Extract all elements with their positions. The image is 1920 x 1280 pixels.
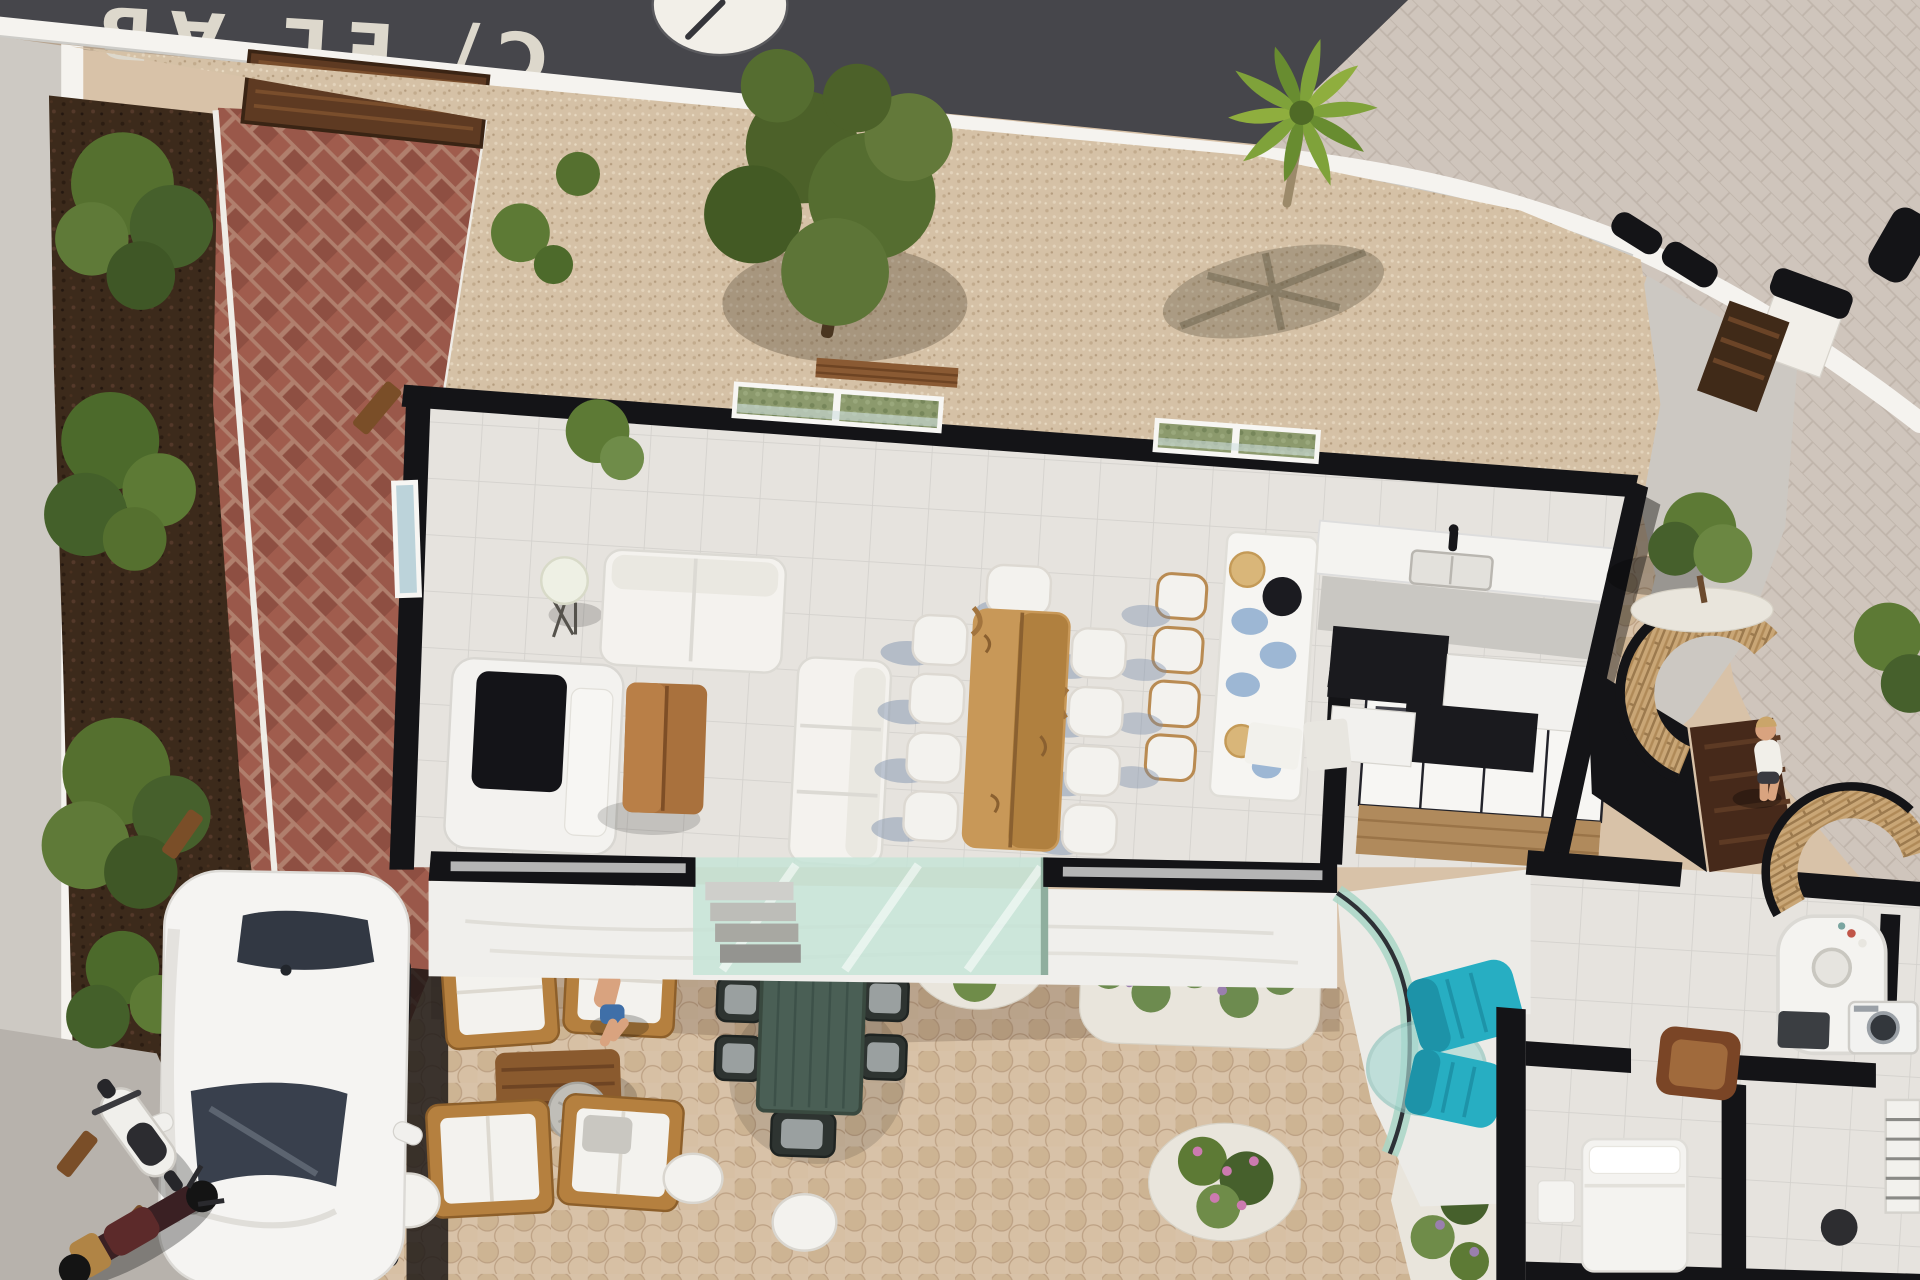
aerial-render-canvas: C/ EL AB xyxy=(0,0,1920,1280)
car-rear-window xyxy=(237,910,375,971)
dark-appliance xyxy=(1777,1011,1830,1050)
flower-bed-pink xyxy=(1149,1123,1301,1241)
lounge-sofa xyxy=(557,1093,684,1211)
dining-table xyxy=(961,608,1071,853)
placemat xyxy=(1229,551,1266,588)
sofa xyxy=(600,549,787,673)
lounge-sofa xyxy=(426,1099,554,1218)
washing-machine xyxy=(1849,1002,1918,1053)
slatted-wardrobe xyxy=(1886,1100,1920,1213)
brown-armchair xyxy=(1655,1025,1743,1102)
car-windshield xyxy=(189,1081,348,1189)
tv-unit xyxy=(443,657,624,856)
side-stool xyxy=(773,1194,837,1250)
left-wall-window xyxy=(391,480,422,598)
sofa-chaise xyxy=(788,657,892,867)
guest-wing xyxy=(1496,850,1920,1280)
bed xyxy=(1582,1139,1687,1271)
scene-svg: C/ EL AB xyxy=(0,0,1920,1280)
round-ottoman xyxy=(1821,1209,1858,1246)
side-stool xyxy=(664,1154,723,1203)
nightstand xyxy=(1538,1181,1575,1223)
basement-glass xyxy=(693,857,1048,975)
